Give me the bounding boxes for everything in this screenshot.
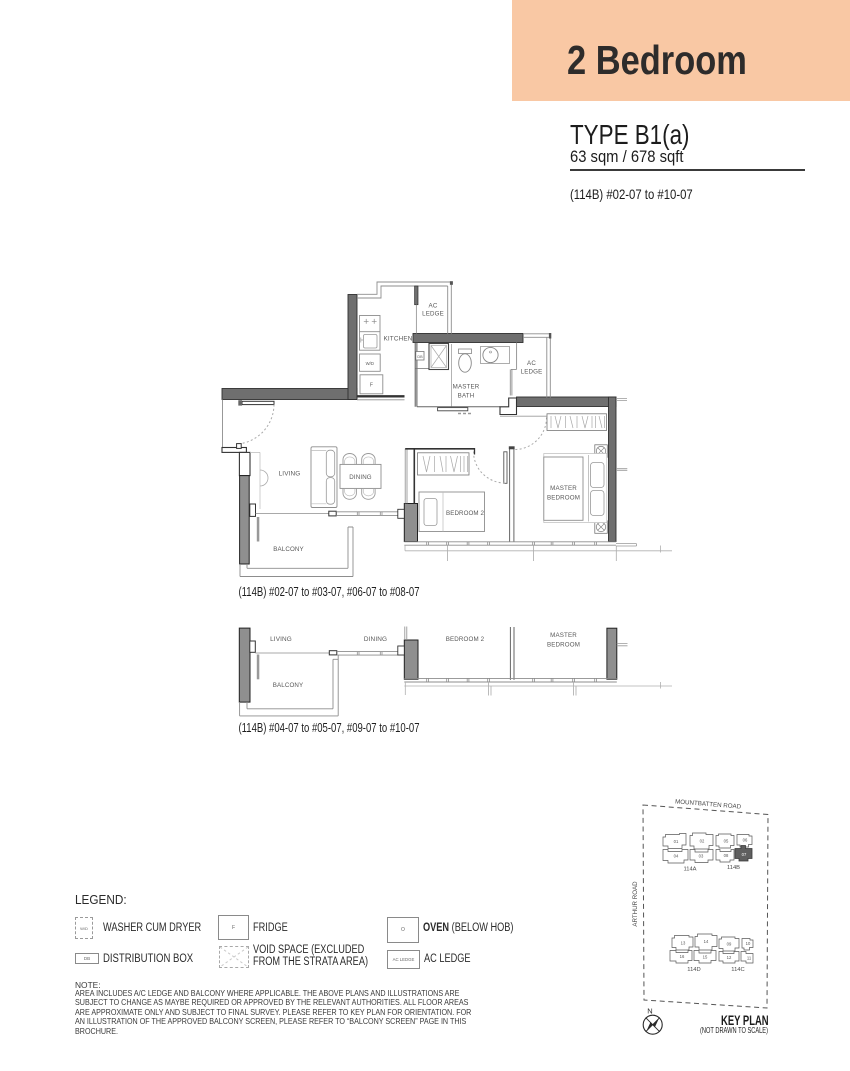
svg-text:AC: AC bbox=[527, 360, 536, 367]
svg-text:16: 16 bbox=[680, 954, 685, 959]
svg-text:(114B) #02-07 to #03-07, #06-0: (114B) #02-07 to #03-07, #06-07 to #08-0… bbox=[239, 585, 420, 599]
svg-text:(114B) #04-07 to #05-07, #09-0: (114B) #04-07 to #05-07, #09-07 to #10-0… bbox=[239, 721, 420, 735]
svg-text:06: 06 bbox=[743, 838, 748, 843]
svg-text:BEDROOM 2: BEDROOM 2 bbox=[446, 510, 484, 517]
svg-text:F: F bbox=[370, 383, 373, 389]
svg-text:13: 13 bbox=[681, 941, 686, 946]
svg-text:09: 09 bbox=[727, 942, 732, 947]
svg-text:114D: 114D bbox=[687, 967, 700, 973]
svg-text:05: 05 bbox=[724, 839, 729, 844]
svg-text:N: N bbox=[647, 1007, 652, 1016]
svg-text:W/D: W/D bbox=[366, 361, 374, 366]
svg-text:BATH: BATH bbox=[458, 393, 475, 400]
svg-text:11: 11 bbox=[747, 956, 752, 961]
svg-text:DINING: DINING bbox=[349, 474, 372, 481]
svg-text:BALCONY: BALCONY bbox=[273, 546, 304, 553]
svg-text:07: 07 bbox=[742, 852, 747, 857]
svg-text:MASTER: MASTER bbox=[550, 632, 577, 639]
svg-text:LEDGE: LEDGE bbox=[521, 369, 543, 376]
svg-text:DINING: DINING bbox=[364, 636, 387, 643]
svg-text:DB: DB bbox=[417, 355, 423, 359]
svg-text:114B: 114B bbox=[727, 865, 740, 871]
svg-text:114A: 114A bbox=[683, 867, 696, 873]
svg-text:02: 02 bbox=[700, 839, 705, 844]
svg-text:BEDROOM: BEDROOM bbox=[547, 495, 580, 502]
svg-text:LEDGE: LEDGE bbox=[422, 311, 444, 318]
svg-text:BEDROOM: BEDROOM bbox=[547, 642, 580, 649]
svg-text:114C: 114C bbox=[731, 967, 744, 973]
svg-text:AC: AC bbox=[429, 303, 438, 310]
svg-text:12: 12 bbox=[727, 955, 732, 960]
svg-text:LIVING: LIVING bbox=[270, 636, 292, 643]
svg-text:BALCONY: BALCONY bbox=[273, 682, 304, 689]
svg-text:01: 01 bbox=[674, 839, 679, 844]
svg-text:10: 10 bbox=[746, 941, 751, 946]
svg-text:MOUNTBATTEN ROAD: MOUNTBATTEN ROAD bbox=[675, 798, 742, 810]
svg-text:14: 14 bbox=[704, 939, 709, 944]
svg-text:ARTHUR ROAD: ARTHUR ROAD bbox=[632, 881, 639, 927]
svg-text:08: 08 bbox=[724, 853, 729, 858]
svg-text:LIVING: LIVING bbox=[279, 471, 301, 478]
svg-text:MASTER: MASTER bbox=[550, 485, 577, 492]
svg-text:03: 03 bbox=[699, 854, 704, 859]
svg-text:15: 15 bbox=[703, 955, 708, 960]
svg-text:04: 04 bbox=[674, 854, 679, 859]
svg-text:KITCHEN: KITCHEN bbox=[383, 336, 412, 343]
svg-text:BEDROOM 2: BEDROOM 2 bbox=[446, 636, 485, 643]
svg-text:MASTER: MASTER bbox=[453, 384, 480, 391]
